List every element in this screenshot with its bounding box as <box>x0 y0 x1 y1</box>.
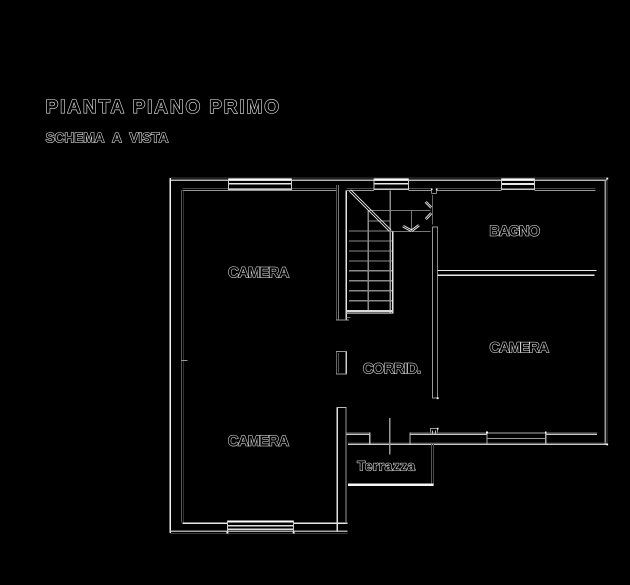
svg-text:CORRID.: CORRID. <box>363 361 421 377</box>
svg-text:Terrazza: Terrazza <box>357 459 415 474</box>
svg-text:PIANTA PIANO PRIMO: PIANTA PIANO PRIMO <box>46 97 279 118</box>
svg-text:BAGNO: BAGNO <box>489 224 540 240</box>
svg-text:SCHEMA A VISTA: SCHEMA A VISTA <box>46 130 169 145</box>
svg-text:CAMERA: CAMERA <box>228 265 290 281</box>
svg-text:CAMERA: CAMERA <box>228 434 290 450</box>
svg-text:CAMERA: CAMERA <box>489 340 549 356</box>
